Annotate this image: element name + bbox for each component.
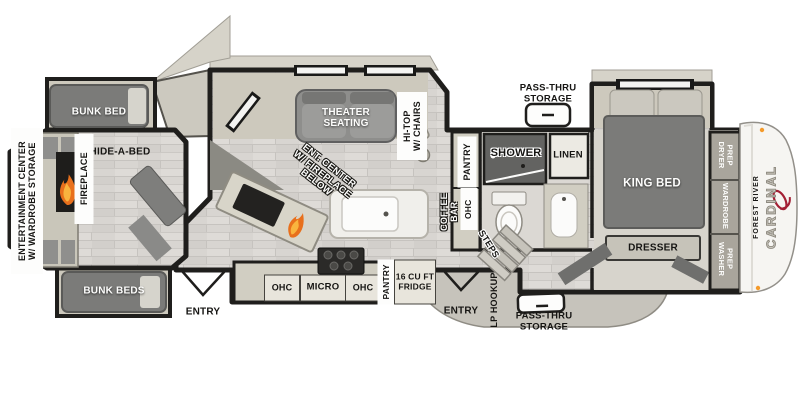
marker-light [756,286,760,290]
label-theater-seating: THEATER SEATING [322,107,370,129]
label-fireplace: FIREPLACE [75,134,94,224]
label-shower: SHOWER [491,147,542,159]
label-king-bed: KING BED [623,178,681,191]
king-bed-shape [604,90,704,228]
label-pantry-upper: PANTRY [458,137,477,188]
label-lp-hookup: LP HOOKUP [489,272,499,327]
label-coffee-bar: COFFEE BAR [439,193,459,231]
label-ohc-upper: OHC [461,188,478,230]
label-entertainment-center: ENTERTAINMENT CENTER W/ WARDROBE STORAGE [11,128,43,274]
pass-thru-door-top [526,104,570,126]
label-bunk-bed: BUNK BED [72,106,126,117]
label-washer-prep: WASHER PREP [717,242,734,276]
label-hi-top: HI-TOP W/ CHAIRS [397,92,427,160]
label-bunk-beds: BUNK BEDS [83,285,144,296]
label-ohc-right: OHC [345,275,381,302]
label-ohc-left: OHC [264,275,300,302]
label-micro: MICRO [300,275,346,302]
floorplan-canvas [0,0,800,400]
label-fridge: 16 CU FT FRIDGE [394,260,436,305]
label-hide-a-bed: HIDE-A-BED [90,146,151,157]
label-entry-rear: ENTRY [186,306,221,317]
entry-door-icon-rear [182,271,225,295]
floorplan: ENTERTAINMENT CENTER W/ WARDROBE STORAGE… [0,0,800,400]
label-dresser: DRESSER [628,242,678,253]
vanity-sink [544,184,588,248]
label-entry-main: ENTRY [444,305,479,316]
marker-light [760,128,764,132]
label-pass-thru-bottom: PASS-THRU STORAGE [516,311,573,332]
label-dryer-prep: DRYER PREP [717,142,734,169]
label-linen: LINEN [553,151,583,162]
label-brand-model: CARDINAL [765,165,780,249]
cooktop-icon [318,248,364,274]
label-wardrobe: WARDROBE [721,183,729,229]
label-brand-manufacturer: FOREST RIVER [753,175,761,239]
label-pass-thru-top: PASS-THRU STORAGE [520,83,577,104]
